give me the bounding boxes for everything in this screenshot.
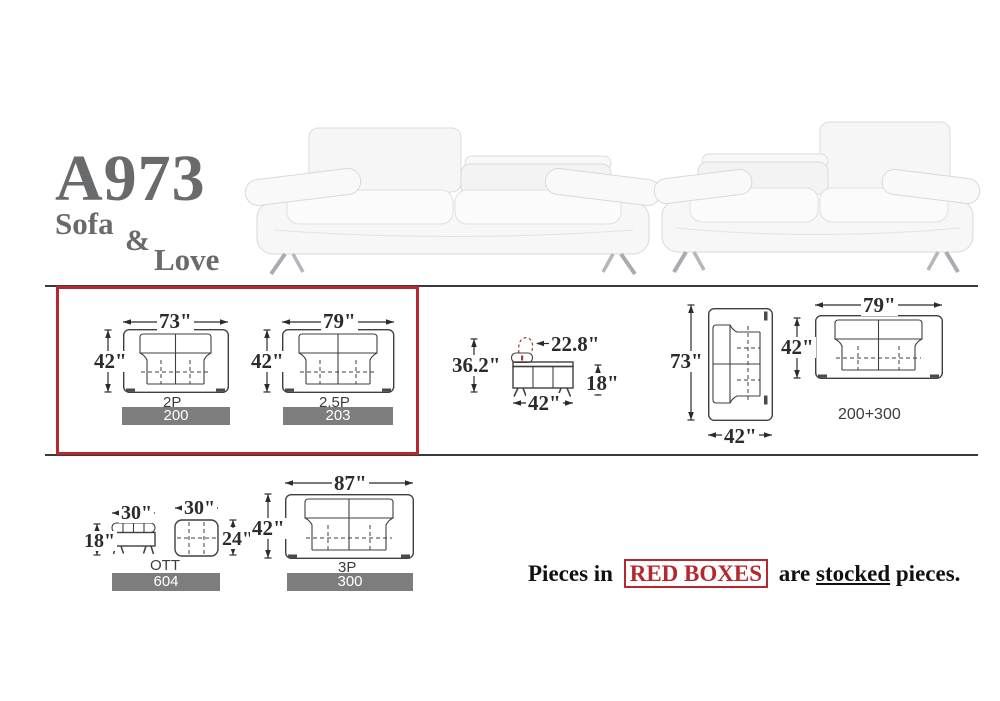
dim-ottoman-top-width: 30" xyxy=(182,498,217,518)
dim-2-5p-depth: 42" xyxy=(249,351,286,372)
label-combo-200-300: 200+300 xyxy=(838,407,901,423)
diagram-top-rotated: 73" 42" xyxy=(656,294,780,452)
dim-2p-depth: 42" xyxy=(92,351,129,372)
diagram-loveseat-top: 79" 42" 200+300 xyxy=(778,290,950,430)
dim-loveseat-depth: 42" xyxy=(779,337,816,358)
title-word-sofa: Sofa xyxy=(55,208,114,239)
dim-3p-depth: 42" xyxy=(250,518,287,539)
sku-badge-300: 300 xyxy=(287,573,413,591)
dim-rotated-depth: 42" xyxy=(722,426,759,447)
dim-loveseat-width: 79" xyxy=(861,295,898,316)
dim-side-depth: 42" xyxy=(526,393,563,414)
note-prefix: Pieces in xyxy=(528,561,613,586)
diagram-ottoman: 30" 30" 18" 24" OTT 604 xyxy=(80,494,258,596)
dim-2-5p-width: 79" xyxy=(321,311,358,332)
note-suffix: pieces. xyxy=(896,561,961,586)
sku-badge-203: 203 xyxy=(283,407,393,425)
title-word-love: Love xyxy=(154,244,219,275)
diagram-2-5p: 79" 42" 2.5P 203 xyxy=(245,300,413,430)
model-number: A973 xyxy=(55,146,206,212)
dim-seat-height: 18" xyxy=(584,373,621,394)
spec-sheet: A973 Sofa & Love xyxy=(0,0,1000,701)
sku-badge-604: 604 xyxy=(112,573,220,591)
dim-rotated-length: 73" xyxy=(668,351,705,372)
diagram-3p: 87" 42" 3P 300 xyxy=(240,465,420,591)
label-ott: OTT xyxy=(142,558,188,573)
note-red-boxes: RED BOXES xyxy=(624,559,768,588)
sofa-rotated-top-view-drawing xyxy=(656,294,780,452)
diagram-2p: 73" 42" 2P 200 xyxy=(95,300,240,430)
loveseat-photo xyxy=(650,112,985,280)
sku-badge-200: 200 xyxy=(122,407,230,425)
sofa-photo xyxy=(243,116,663,278)
title-ampersand: & xyxy=(125,226,150,256)
dim-3p-width: 87" xyxy=(332,473,369,494)
dim-side-height: 36.2" xyxy=(450,355,502,376)
dim-ottoman-side-width: 30" xyxy=(119,503,154,523)
dim-ottoman-height: 18" xyxy=(82,531,117,551)
note-stocked: stocked xyxy=(816,561,890,586)
diagram-side-profile: 36.2" 22.8" 18" 42" xyxy=(450,330,628,420)
stocked-pieces-note: Pieces in RED BOXES are stocked pieces. xyxy=(528,561,960,587)
dim-2p-width: 73" xyxy=(157,311,194,332)
dim-headrest-depth: 22.8" xyxy=(549,334,601,355)
note-middle: are xyxy=(779,561,811,586)
